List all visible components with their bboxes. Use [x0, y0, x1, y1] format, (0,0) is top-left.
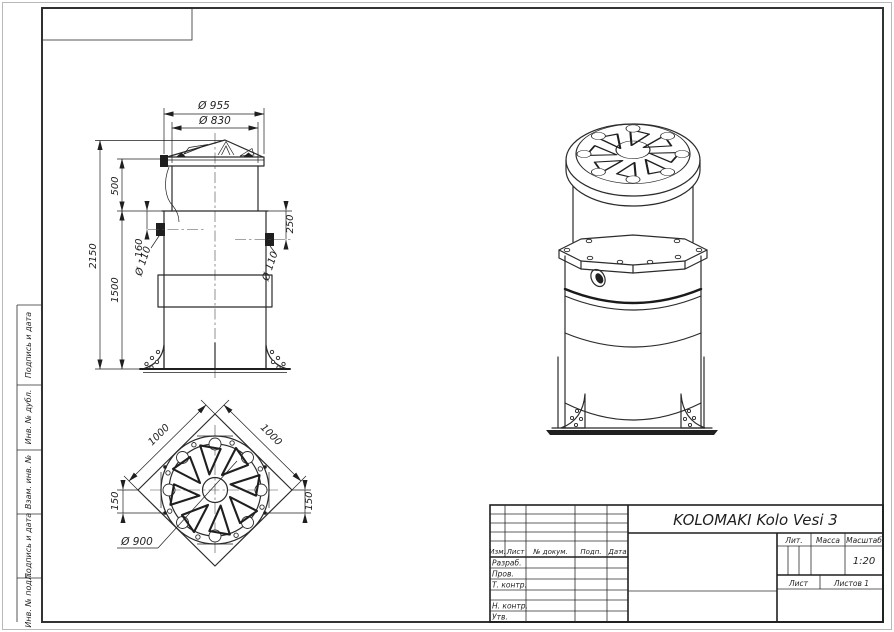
dim-body-height: 1500: [110, 211, 122, 369]
row-prov: Пров.: [492, 570, 514, 579]
dim-total-height: 2150: [88, 141, 222, 370]
margin-cell-label: Взам. инв. №: [24, 455, 33, 509]
dim-inlet-dia-right: Ø 110: [259, 246, 280, 283]
row-nkontr: Н. контр.: [492, 602, 528, 611]
row-razrab: Разраб.: [492, 559, 521, 568]
drawing-title: KOLOMAKI Kolo Vesi 3: [673, 511, 838, 529]
col-list: Лист: [506, 548, 526, 556]
iso-flange: [559, 235, 707, 273]
iso-band-top: [565, 289, 701, 303]
margin-column: Подпись и дата Инв. № дубл. Взам. инв. №…: [17, 305, 42, 628]
dim-label-150-right: 150: [304, 491, 315, 510]
top-view: 1000 1000 150 150 Ø 900: [110, 400, 315, 566]
row-utv: Утв.: [492, 613, 508, 622]
dim-label-900: Ø 900: [120, 536, 153, 548]
dim-label-110-right: Ø 110: [259, 250, 280, 283]
iso-lid: [566, 124, 700, 206]
lid-clip: [160, 155, 168, 167]
dim-base-side-right: 1000: [215, 400, 306, 490]
front-lid: [160, 140, 264, 222]
dim-offset-left: 150: [110, 482, 165, 521]
col-ndokum: № докум.: [532, 548, 568, 556]
front-view: Ø 955 Ø 830 2150 500 1500 160: [88, 100, 296, 380]
label-massa: Масса: [816, 536, 840, 545]
margin-cell-label: Подпись и дата: [24, 312, 33, 378]
dim-label-2150: 2150: [88, 243, 99, 268]
col-data: Дата: [607, 548, 626, 556]
iso-base: [546, 357, 718, 435]
label-listov: Листов 1: [833, 579, 869, 588]
top-left-stamp-box: [42, 8, 192, 40]
col-izm: Изм.: [489, 548, 505, 556]
margin-cell-label: Подпись и дата: [24, 513, 33, 579]
iso-neck: [573, 186, 693, 242]
label-list: Лист: [788, 579, 809, 588]
row-tkontr: Т. контр.: [492, 581, 527, 590]
iso-band-bottom: [565, 333, 701, 347]
dim-label-150-left: 150: [110, 491, 121, 510]
col-podp: Подп.: [580, 548, 601, 556]
dim-label-250: 250: [285, 214, 296, 233]
lid-vent-profile: [184, 145, 208, 155]
dim-label-500: 500: [110, 176, 121, 195]
iso-lid-vents: [576, 124, 690, 183]
margin-cell-label: Инв. № дубл.: [24, 390, 33, 445]
dim-label-1000-left: 1000: [146, 422, 172, 448]
dim-label-830: Ø 830: [198, 115, 231, 127]
iso-base-plate-edge: [546, 430, 718, 435]
title-block: Изм. Лист № докум. Подп. Дата Разраб. Пр…: [489, 505, 883, 622]
dim-label-1000-right: 1000: [258, 422, 284, 448]
dim-neck-height: 500: [110, 159, 164, 211]
dim-lid-outer-diameter: Ø 955: [164, 100, 264, 154]
margin-cell-label: Инв. № подл.: [24, 572, 33, 627]
front-inlet-pipes: [148, 223, 292, 246]
label-lit: Лит.: [784, 536, 802, 545]
dim-label-1500: 1500: [110, 277, 121, 302]
iso-flange-bolt-holes: [564, 239, 702, 263]
isometric-view: [546, 124, 718, 435]
label-masshtab: Масштаб: [846, 536, 882, 545]
drawing-sheet: Подпись и дата Инв. № дубл. Взам. инв. №…: [0, 0, 894, 632]
drawing-canvas: Подпись и дата Инв. № дубл. Взам. инв. №…: [0, 0, 894, 632]
dim-label-955: Ø 955: [197, 100, 230, 112]
scale-value: 1:20: [853, 556, 875, 567]
